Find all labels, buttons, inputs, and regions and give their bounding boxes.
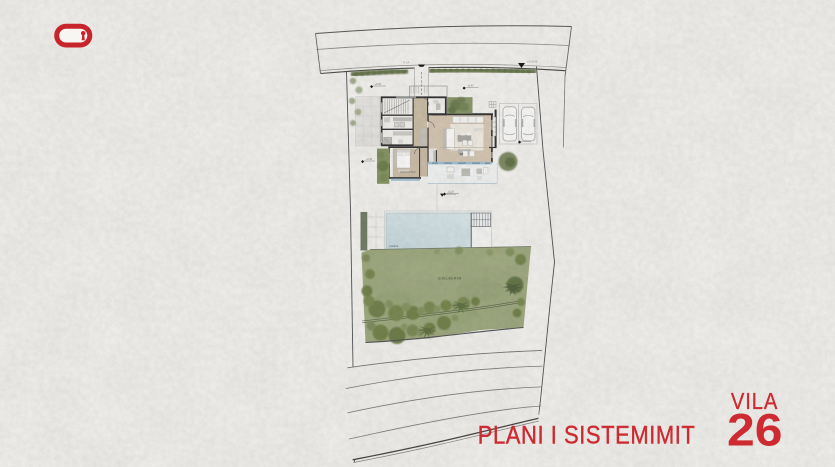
svg-text:PLANI I SISTEMIMIT: PLANI I SISTEMIMIT xyxy=(478,423,696,450)
svg-text:26: 26 xyxy=(727,405,783,456)
